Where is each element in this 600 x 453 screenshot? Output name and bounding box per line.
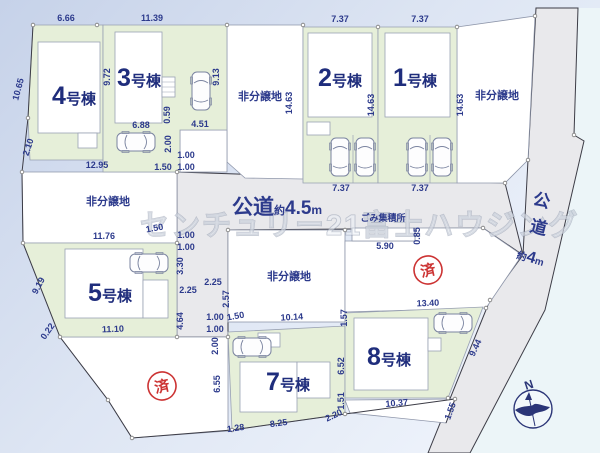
dimension-label: 2.57 (221, 290, 231, 308)
road-width: 4.5 (285, 198, 312, 219)
road-approx: 約 (274, 203, 285, 217)
garbage-label: ごみ集積所 (360, 212, 405, 223)
lot-suffix: 号棟 (131, 72, 162, 90)
building-5-ext (143, 280, 168, 318)
building-8-entrance (428, 338, 441, 351)
dimension-label: 1.57 (339, 309, 349, 327)
dimension-label: 12.95 (86, 160, 109, 170)
site-plan: センチュリー21富士ハウジング 6.66 11.39 7.37 7.37 10.… (0, 0, 600, 453)
dimension-label: 1.00 (177, 150, 195, 160)
car-icon (130, 253, 168, 274)
dimension-label: 3.30 (175, 257, 185, 275)
lot-suffix: 号棟 (407, 72, 438, 90)
dimension-label: 6.52 (336, 357, 346, 375)
lot-number: 5 (88, 279, 102, 307)
dimension-label: 1.00 (177, 230, 195, 240)
dimension-label: 8.25 (269, 417, 288, 429)
dimension-label: 1.00 (206, 312, 224, 322)
lot-number: 4 (52, 82, 66, 110)
car-icon (330, 138, 351, 176)
dimension-label: 2.25 (179, 285, 197, 295)
building-4-step (78, 133, 97, 148)
car-icon (355, 138, 376, 176)
lot-suffix: 号棟 (332, 72, 363, 90)
car-icon (191, 72, 212, 110)
lot-number: 3 (117, 64, 131, 92)
nonsale-label: 非分譲地 (238, 89, 282, 103)
dimension-label: 5.90 (376, 241, 394, 251)
building-2-step (307, 122, 330, 135)
car-icon (432, 138, 453, 176)
dimension-label: 7.37 (332, 183, 350, 193)
dimension-label: 9.13 (211, 68, 221, 86)
nonsale-label: 非分譲地 (475, 88, 519, 102)
lot-suffix: 号棟 (102, 287, 133, 305)
site-plan-canvas: センチュリー21富士ハウジング 6.66 11.39 7.37 7.37 10.… (0, 0, 600, 453)
dimension-label: 4.51 (191, 119, 209, 129)
nonsale-label: 非分譲地 (267, 269, 311, 283)
dimension-label: 10.14 (280, 311, 303, 322)
dimension-label: 13.40 (416, 298, 439, 309)
dimension-label: 7.37 (411, 14, 429, 24)
dimension-label: 14.63 (366, 94, 376, 117)
nonsale-label: 非分譲地 (86, 194, 130, 208)
dimension-label: 6.55 (212, 375, 222, 393)
dimension-label: 14.63 (284, 92, 294, 115)
lot-suffix: 号棟 (280, 376, 311, 394)
dimension-label: 2.25 (204, 277, 222, 287)
lot-number: 1 (393, 64, 407, 92)
dimension-label: 11.39 (141, 13, 163, 23)
dimension-label: 1.00 (177, 242, 195, 252)
lot-suffix: 号棟 (381, 351, 412, 369)
dimension-label: 6.66 (57, 13, 75, 23)
lot-number: 7 (266, 368, 280, 396)
dimension-label: 6.88 (132, 120, 150, 130)
dimension-label: 1.51 (336, 392, 346, 410)
dimension-label: 11.76 (93, 231, 115, 241)
dimension-label: 0.59 (162, 106, 172, 124)
building-4 (38, 42, 100, 133)
dimension-label: 14.63 (455, 94, 465, 117)
road-unit: m (311, 203, 322, 217)
dimension-label: 0.85 (412, 227, 422, 245)
dimension-label: 7.37 (411, 183, 429, 193)
dimension-label: 7.37 (331, 14, 349, 24)
road-name: 公道 (232, 195, 274, 219)
dimension-label: 2.00 (210, 337, 220, 355)
car-icon (233, 337, 271, 358)
lot-number: 2 (318, 64, 332, 92)
car-icon (407, 138, 428, 176)
lot-suffix: 号棟 (66, 90, 97, 108)
dimension-label: 11.10 (102, 324, 124, 335)
dimension-label: 1.50 (154, 162, 172, 172)
dimension-label: 9.72 (102, 68, 112, 86)
dimension-label: 4.64 (175, 312, 185, 330)
dimension-label: 1.00 (206, 324, 224, 334)
dimension-label: 2.00 (163, 135, 173, 153)
lot-number: 8 (367, 343, 381, 371)
car-icon (434, 313, 472, 334)
dimension-label: 1.00 (177, 162, 195, 172)
dimension-label: 10.37 (385, 397, 408, 409)
car-icon (117, 132, 155, 153)
